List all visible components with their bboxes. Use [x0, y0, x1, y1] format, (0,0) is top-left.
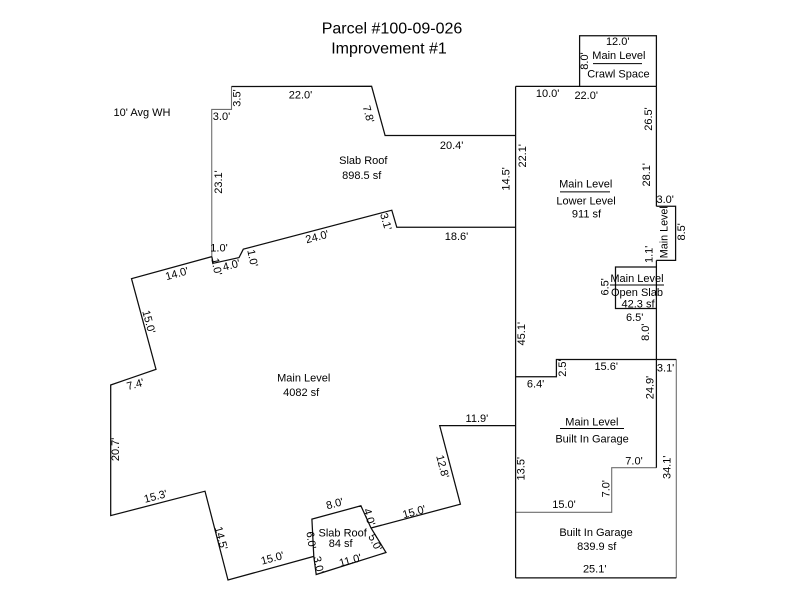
svg-text:Improvement #1: Improvement #1	[331, 41, 447, 58]
svg-text:22.0': 22.0'	[574, 90, 598, 102]
svg-text:6.4': 6.4'	[527, 379, 544, 391]
svg-text:1.0': 1.0'	[210, 243, 227, 255]
svg-text:Main Level: Main Level	[592, 50, 645, 62]
svg-text:15.0': 15.0'	[552, 499, 576, 511]
svg-text:Open Slab: Open Slab	[611, 287, 663, 299]
svg-text:7.0': 7.0'	[600, 480, 612, 497]
svg-text:3.0': 3.0'	[213, 111, 230, 123]
svg-text:Built In Garage: Built In Garage	[559, 527, 632, 539]
svg-text:15.6': 15.6'	[594, 361, 618, 373]
svg-text:23.1': 23.1'	[213, 170, 225, 194]
svg-text:26.5': 26.5'	[643, 107, 655, 131]
svg-text:6.5': 6.5'	[600, 278, 612, 295]
svg-text:Main Level: Main Level	[559, 179, 612, 191]
svg-text:911 sf: 911 sf	[572, 209, 602, 221]
svg-text:4082 sf: 4082 sf	[283, 387, 320, 399]
svg-text:Crawl Space: Crawl Space	[587, 69, 649, 81]
svg-text:Main Level: Main Level	[277, 373, 330, 385]
svg-text:22.0': 22.0'	[289, 90, 313, 102]
svg-text:Main Level: Main Level	[565, 417, 618, 429]
svg-text:34.1': 34.1'	[661, 456, 673, 480]
svg-text:6.5': 6.5'	[626, 312, 643, 324]
svg-text:3.5': 3.5'	[232, 89, 244, 106]
svg-text:839.9 sf: 839.9 sf	[577, 541, 617, 553]
svg-text:13.5': 13.5'	[516, 457, 528, 481]
svg-text:24.9': 24.9'	[644, 376, 656, 400]
svg-text:Lower Level: Lower Level	[556, 196, 615, 208]
svg-text:28.1': 28.1'	[641, 163, 653, 187]
svg-text:45.1': 45.1'	[516, 322, 528, 346]
svg-text:11.9': 11.9'	[466, 413, 489, 425]
svg-text:898.5 sf: 898.5 sf	[342, 170, 382, 182]
svg-text:22.1': 22.1'	[517, 144, 529, 168]
svg-text:20.7': 20.7'	[110, 438, 122, 462]
svg-text:Built In Garage: Built In Garage	[555, 434, 628, 446]
svg-text:Parcel #100-09-026: Parcel #100-09-026	[322, 21, 463, 38]
svg-text:3.0': 3.0'	[656, 194, 673, 206]
svg-text:Main Level: Main Level	[610, 273, 663, 285]
svg-text:10.0': 10.0'	[536, 88, 560, 100]
svg-text:7.0': 7.0'	[625, 456, 642, 468]
svg-text:20.4': 20.4'	[440, 140, 464, 152]
svg-text:8.0': 8.0'	[640, 323, 652, 340]
svg-text:Main Level: Main Level	[659, 206, 671, 258]
svg-text:6.0': 6.0'	[303, 531, 317, 550]
svg-text:3.1': 3.1'	[657, 363, 674, 375]
svg-text:8.5': 8.5'	[676, 223, 688, 240]
svg-text:18.6': 18.6'	[445, 231, 469, 243]
svg-text:12.0': 12.0'	[606, 36, 630, 48]
svg-text:42.3 sf: 42.3 sf	[621, 299, 655, 311]
svg-text:2.5': 2.5'	[557, 359, 569, 376]
svg-text:14.5': 14.5'	[501, 167, 513, 191]
svg-text:Slab Roof: Slab Roof	[339, 155, 388, 167]
svg-text:1.1': 1.1'	[644, 246, 656, 263]
svg-text:10' Avg WH: 10' Avg WH	[114, 107, 171, 119]
svg-text:84 sf: 84 sf	[329, 538, 354, 550]
svg-text:25.1': 25.1'	[583, 564, 607, 576]
svg-text:8.0': 8.0'	[579, 52, 591, 69]
